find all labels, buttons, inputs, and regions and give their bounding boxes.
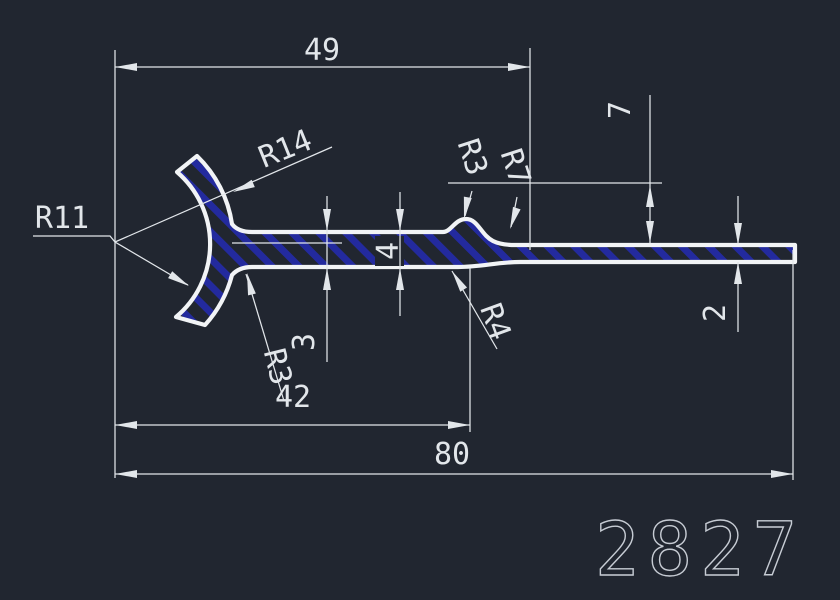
arrow-80-right	[771, 470, 793, 478]
arrow-r11	[168, 271, 191, 289]
arrow-r3-bottom	[243, 272, 256, 295]
arrow-7-up	[646, 185, 654, 207]
dim-7-label: 7	[603, 101, 638, 119]
radius-r14-label: R14	[254, 123, 317, 176]
cad-profile-drawing: 49 42 80 7 4 3 2 R14 R11 R3 R7 R4 R3 282…	[0, 0, 840, 600]
radius-r11-label: R11	[35, 201, 89, 236]
arrow-r3-top	[460, 197, 472, 220]
radius-r3-top-label: R3	[450, 134, 494, 179]
arrow-42-right	[448, 421, 470, 429]
arrow-3-down	[323, 209, 331, 231]
dim-49-label: 49	[304, 33, 340, 68]
arrow-49-left	[115, 63, 137, 71]
r11-leader	[33, 236, 188, 285]
dim-2-label: 2	[698, 304, 733, 322]
arrow-r14	[231, 180, 254, 196]
arrow-2-up	[734, 262, 742, 284]
profile-outline	[176, 156, 795, 325]
dim-4-label: 4	[371, 242, 406, 260]
arrow-4-down	[396, 209, 404, 231]
arrow-3-up	[323, 268, 331, 290]
arrow-4-up	[396, 268, 404, 290]
arrow-49-right	[508, 63, 530, 71]
radius-r4-label: R4	[472, 299, 517, 345]
arrow-2-down	[734, 223, 742, 245]
arrow-r4	[449, 269, 467, 292]
arrow-r7	[506, 207, 520, 230]
arrow-42-left	[115, 421, 137, 429]
dim-80-label: 80	[434, 437, 470, 472]
arrow-7-down	[646, 221, 654, 243]
arrow-80-left	[115, 470, 137, 478]
dim-3-label: 3	[287, 333, 322, 351]
dim-42-label: 42	[275, 380, 311, 415]
drawing-number: 2827	[595, 507, 805, 593]
